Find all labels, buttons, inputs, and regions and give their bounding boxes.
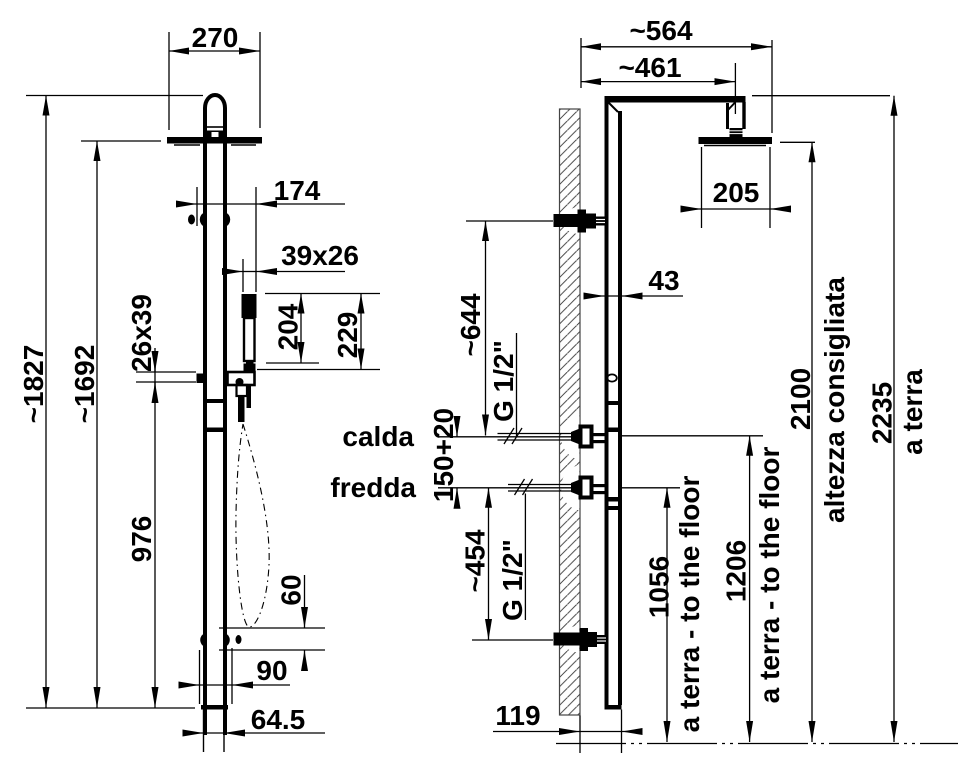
svg-text:1056: 1056 (644, 556, 675, 618)
svg-text:60: 60 (276, 574, 307, 605)
svg-text:~454: ~454 (460, 529, 491, 592)
svg-text:G 1/2": G 1/2" (497, 539, 528, 621)
svg-text:229: 229 (332, 312, 363, 359)
svg-text:64.5: 64.5 (251, 704, 306, 735)
svg-text:174: 174 (274, 175, 321, 206)
svg-text:39x26: 39x26 (281, 240, 359, 271)
svg-text:270: 270 (192, 22, 239, 53)
svg-text:119: 119 (495, 700, 540, 731)
svg-text:fredda: fredda (330, 472, 416, 503)
svg-text:altezza consigliata: altezza consigliata (819, 277, 850, 523)
svg-text:2100: 2100 (785, 368, 816, 430)
svg-text:1206: 1206 (721, 540, 752, 602)
svg-text:43: 43 (648, 265, 679, 296)
svg-text:~564: ~564 (629, 15, 692, 46)
svg-text:150+20: 150+20 (428, 408, 459, 502)
svg-text:calda: calda (342, 421, 414, 452)
svg-text:G 1/2": G 1/2" (488, 340, 519, 422)
svg-text:90: 90 (256, 655, 287, 686)
svg-text:~461: ~461 (618, 52, 681, 83)
svg-text:205: 205 (713, 177, 760, 208)
svg-text:26x39: 26x39 (126, 294, 157, 372)
svg-text:a terra - to the floor: a terra - to the floor (754, 447, 785, 704)
svg-text:976: 976 (126, 516, 157, 563)
svg-text:a terra - to the floor: a terra - to the floor (674, 476, 705, 733)
svg-text:~1827: ~1827 (18, 345, 49, 424)
svg-text:2235: 2235 (867, 382, 898, 444)
svg-text:204: 204 (273, 303, 304, 350)
svg-text:~644: ~644 (455, 293, 486, 356)
svg-text:a terra: a terra (897, 369, 928, 455)
svg-text:~1692: ~1692 (69, 345, 100, 424)
